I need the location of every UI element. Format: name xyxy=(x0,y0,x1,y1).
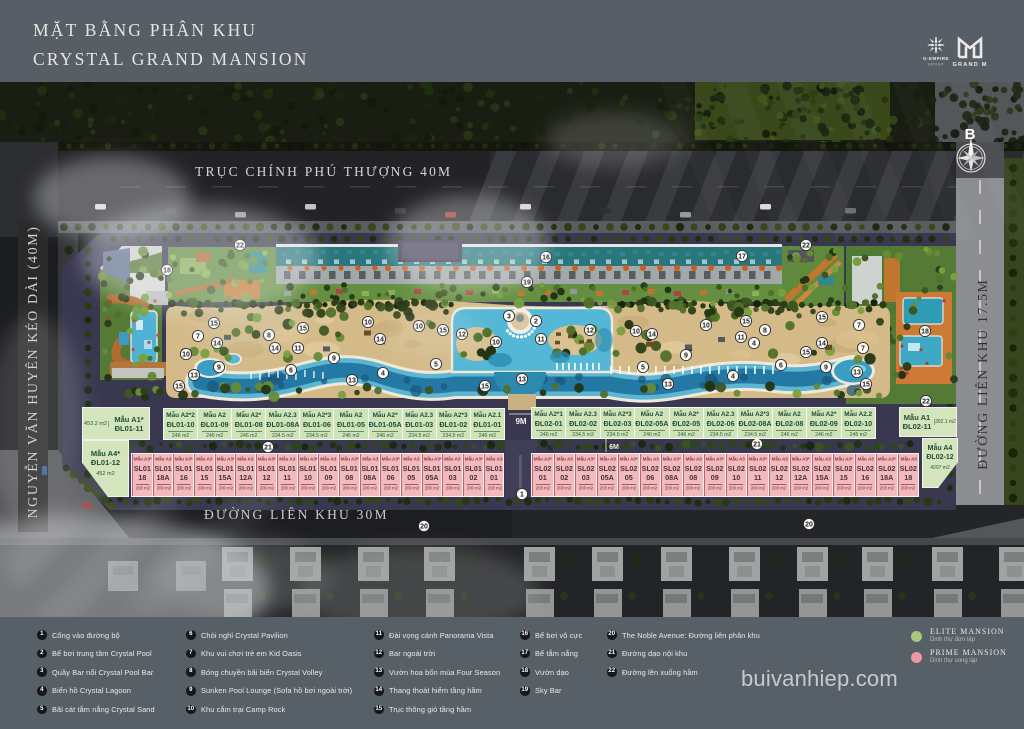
svg-text:10: 10 xyxy=(492,339,500,346)
svg-text:6: 6 xyxy=(289,367,293,374)
svg-text:14: 14 xyxy=(818,340,826,347)
svg-text:17: 17 xyxy=(738,253,746,260)
svg-text:4: 4 xyxy=(731,373,735,380)
svg-text:5: 5 xyxy=(641,364,645,371)
svg-text:13: 13 xyxy=(518,376,526,383)
svg-text:14: 14 xyxy=(376,336,384,343)
svg-text:20: 20 xyxy=(420,523,428,530)
svg-text:8: 8 xyxy=(763,327,767,334)
svg-text:15: 15 xyxy=(742,318,750,325)
svg-text:5: 5 xyxy=(434,361,438,368)
svg-text:13: 13 xyxy=(853,369,861,376)
svg-text:9: 9 xyxy=(332,355,336,362)
svg-text:15: 15 xyxy=(818,314,826,321)
svg-text:9: 9 xyxy=(217,364,221,371)
svg-text:13: 13 xyxy=(664,381,672,388)
svg-text:2: 2 xyxy=(534,318,538,325)
svg-text:15: 15 xyxy=(862,381,870,388)
svg-text:15: 15 xyxy=(802,349,810,356)
svg-text:9M: 9M xyxy=(515,417,526,426)
svg-text:4: 4 xyxy=(381,370,385,377)
svg-text:11: 11 xyxy=(537,336,545,343)
svg-text:GRAND M: GRAND M xyxy=(952,62,987,68)
svg-text:10: 10 xyxy=(632,328,640,335)
svg-text:15: 15 xyxy=(175,383,183,390)
svg-text:G-EMPIRE: G-EMPIRE xyxy=(923,56,949,61)
svg-text:20: 20 xyxy=(805,521,813,528)
svg-text:6M: 6M xyxy=(609,444,619,451)
svg-text:10: 10 xyxy=(364,319,372,326)
svg-text:4: 4 xyxy=(752,340,756,347)
svg-text:7: 7 xyxy=(857,322,861,329)
svg-text:21: 21 xyxy=(264,444,272,451)
svg-text:22: 22 xyxy=(802,242,810,249)
svg-text:1: 1 xyxy=(520,491,524,498)
svg-text:21: 21 xyxy=(753,441,761,448)
svg-text:14: 14 xyxy=(648,331,656,338)
svg-text:22: 22 xyxy=(922,398,930,405)
svg-text:13: 13 xyxy=(348,377,356,384)
svg-text:6: 6 xyxy=(779,362,783,369)
svg-text:9: 9 xyxy=(684,352,688,359)
svg-text:10: 10 xyxy=(182,351,190,358)
svg-text:15: 15 xyxy=(481,383,489,390)
svg-text:11: 11 xyxy=(294,345,302,352)
svg-text:11: 11 xyxy=(737,334,745,341)
svg-text:3: 3 xyxy=(507,313,511,320)
svg-text:GROUP: GROUP xyxy=(928,63,945,67)
svg-text:18: 18 xyxy=(921,328,929,335)
svg-text:7: 7 xyxy=(861,345,865,352)
svg-text:12: 12 xyxy=(586,327,594,334)
svg-text:10: 10 xyxy=(702,322,710,329)
svg-text:13: 13 xyxy=(190,372,198,379)
svg-text:9: 9 xyxy=(824,364,828,371)
